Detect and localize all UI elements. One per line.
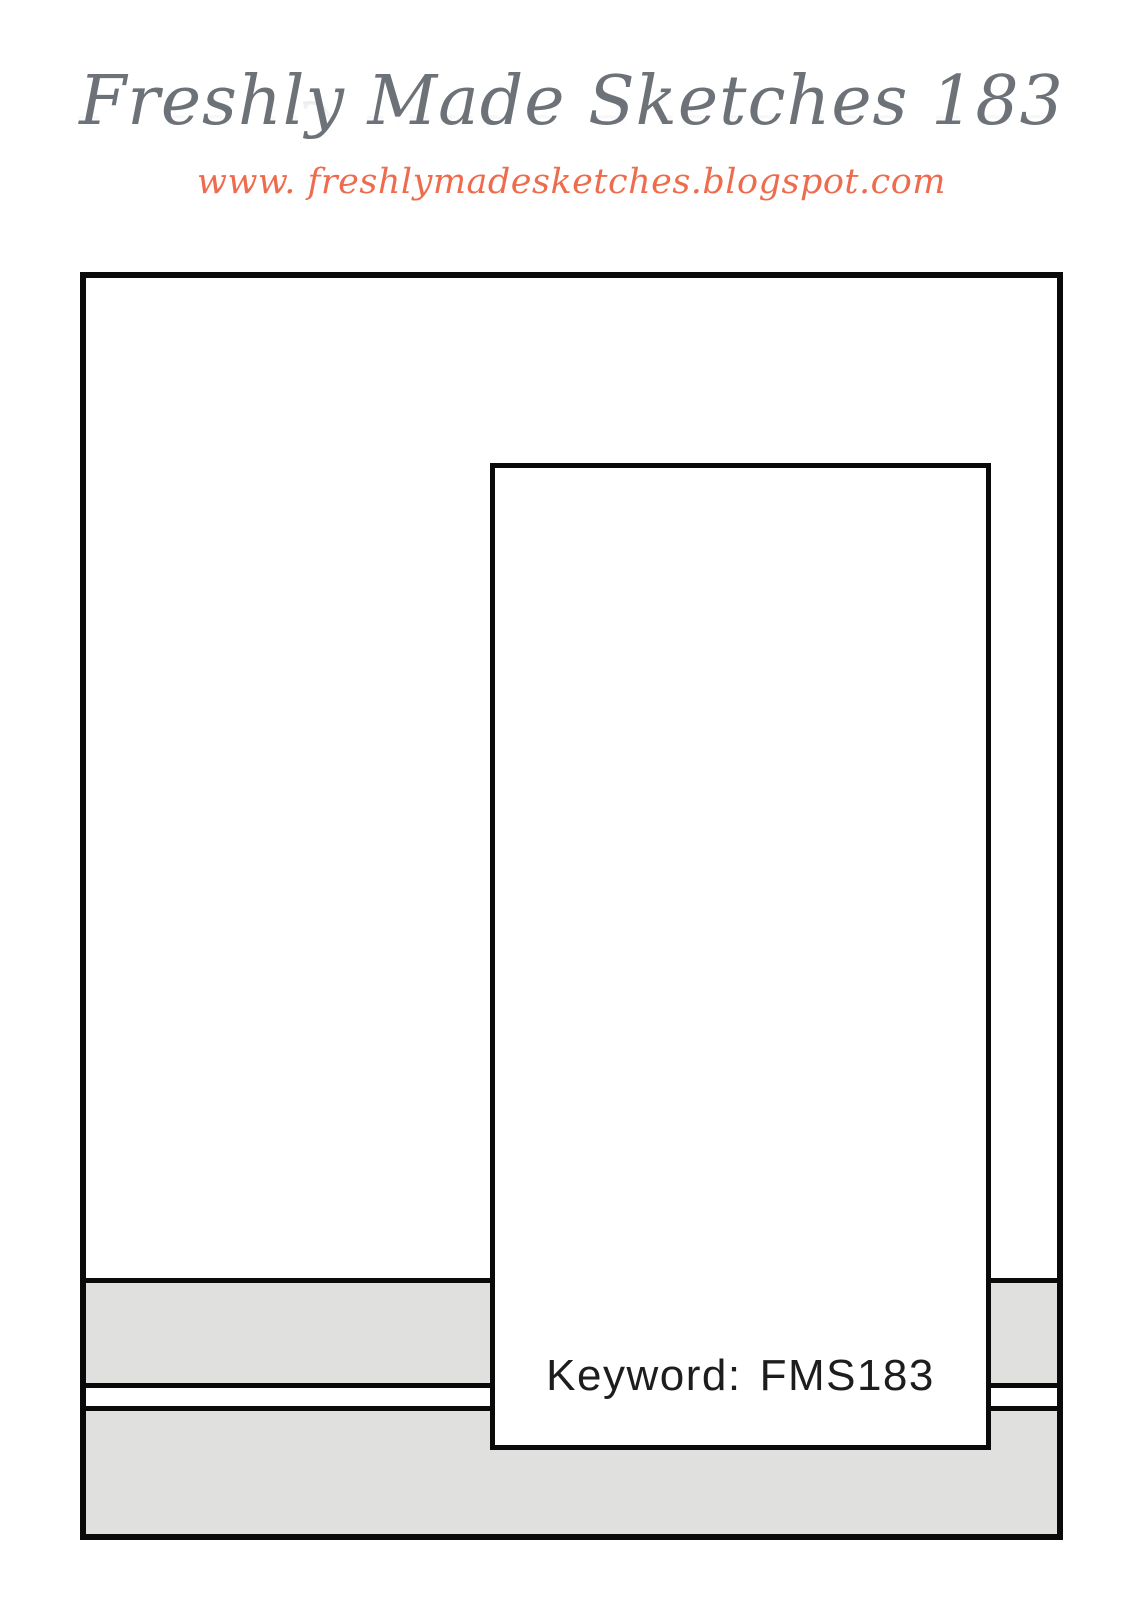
keyword-label: Keyword: [546,1351,741,1400]
vertical-panel: Keyword:FMS183 [490,463,991,1450]
page-title: Freshly Made Sketches 183 [0,58,1143,146]
keyword-text: Keyword:FMS183 [495,1351,986,1401]
keyword-value: FMS183 [760,1351,935,1400]
site-url: www. freshlymadesketches.blogspot.com [0,160,1143,206]
